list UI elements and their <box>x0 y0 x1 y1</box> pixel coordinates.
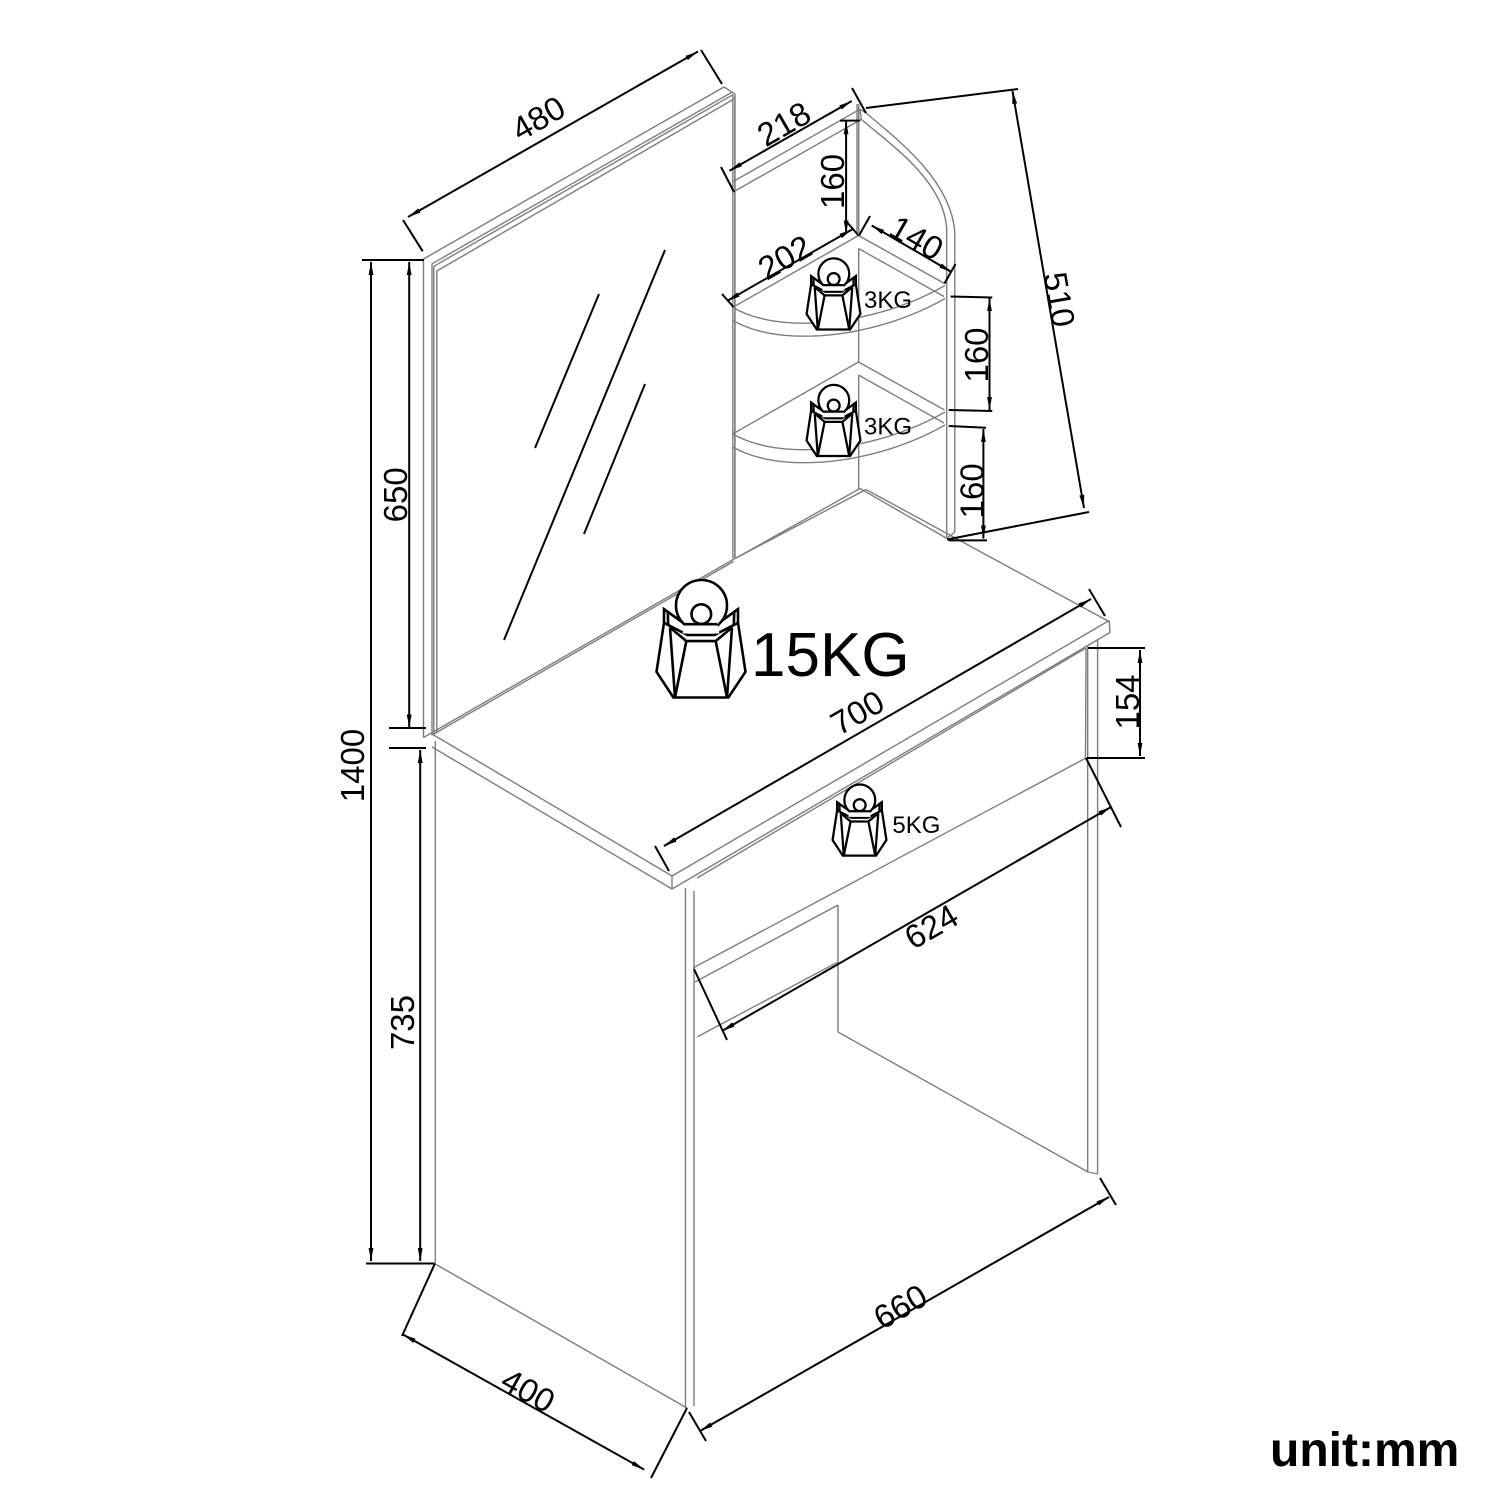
svg-text:160: 160 <box>958 327 995 382</box>
svg-text:15KG: 15KG <box>751 621 910 690</box>
svg-text:3KG: 3KG <box>864 414 912 441</box>
svg-text:735: 735 <box>384 995 421 1050</box>
svg-text:160: 160 <box>953 463 990 518</box>
svg-text:154: 154 <box>1109 674 1146 729</box>
svg-text:650: 650 <box>377 467 414 522</box>
svg-text:160: 160 <box>814 154 851 209</box>
svg-text:unit:mm: unit:mm <box>1270 1424 1459 1477</box>
svg-text:1400: 1400 <box>334 729 371 802</box>
svg-text:5KG: 5KG <box>892 812 940 839</box>
svg-text:3KG: 3KG <box>864 287 912 314</box>
